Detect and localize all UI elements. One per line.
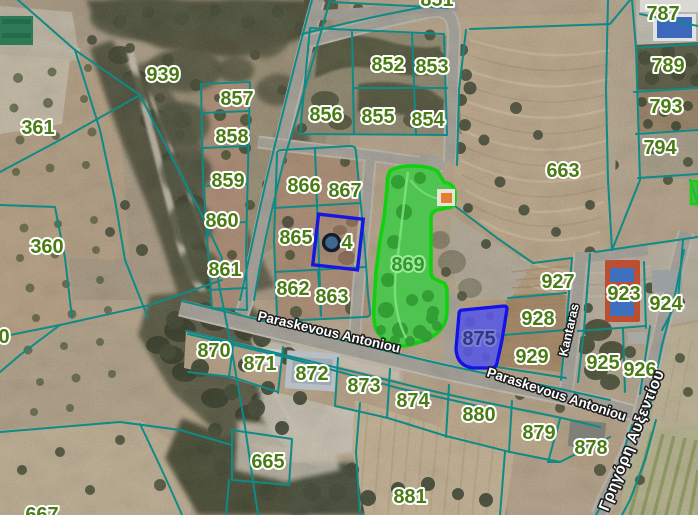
- svg-text:861: 861: [208, 259, 241, 281]
- svg-text:878: 878: [574, 437, 607, 459]
- svg-text:665: 665: [251, 451, 284, 473]
- svg-text:879: 879: [522, 422, 555, 444]
- svg-text:865: 865: [279, 227, 312, 249]
- svg-text:872: 872: [295, 363, 328, 385]
- svg-text:859: 859: [211, 170, 244, 192]
- svg-text:880: 880: [462, 404, 495, 426]
- svg-text:925: 925: [586, 352, 619, 374]
- svg-text:361: 361: [21, 117, 54, 139]
- svg-text:794: 794: [643, 137, 677, 159]
- svg-text:852: 852: [371, 54, 404, 76]
- svg-text:862: 862: [276, 278, 309, 300]
- svg-text:939: 939: [146, 64, 179, 86]
- svg-text:857: 857: [220, 88, 253, 110]
- svg-text:851: 851: [420, 0, 453, 11]
- svg-text:787: 787: [646, 3, 679, 25]
- svg-text:4: 4: [341, 232, 353, 254]
- svg-text:858: 858: [215, 126, 248, 148]
- svg-text:928: 928: [521, 308, 554, 330]
- svg-text:875: 875: [462, 328, 495, 350]
- svg-text:855: 855: [361, 106, 394, 128]
- svg-text:863: 863: [315, 286, 348, 308]
- svg-text:866: 866: [287, 175, 320, 197]
- svg-text:856: 856: [309, 104, 342, 126]
- svg-text:924: 924: [649, 293, 683, 315]
- svg-text:927: 927: [541, 271, 574, 293]
- svg-text:663: 663: [546, 160, 579, 182]
- svg-text:867: 867: [328, 180, 361, 202]
- svg-text:870: 870: [197, 340, 230, 362]
- svg-text:0: 0: [0, 326, 10, 348]
- svg-text:793: 793: [649, 96, 682, 118]
- svg-text:667: 667: [25, 504, 58, 515]
- svg-text:871: 871: [243, 353, 276, 375]
- svg-text:860: 860: [205, 210, 238, 232]
- svg-text:929: 929: [515, 346, 548, 368]
- svg-text:874: 874: [396, 390, 430, 412]
- svg-text:869: 869: [391, 254, 424, 276]
- svg-text:923: 923: [607, 283, 640, 305]
- svg-text:853: 853: [415, 56, 448, 78]
- svg-text:881: 881: [393, 486, 426, 508]
- svg-text:360: 360: [30, 236, 63, 258]
- svg-text:873: 873: [347, 375, 380, 397]
- svg-text:854: 854: [411, 109, 445, 131]
- svg-text:789: 789: [651, 55, 684, 77]
